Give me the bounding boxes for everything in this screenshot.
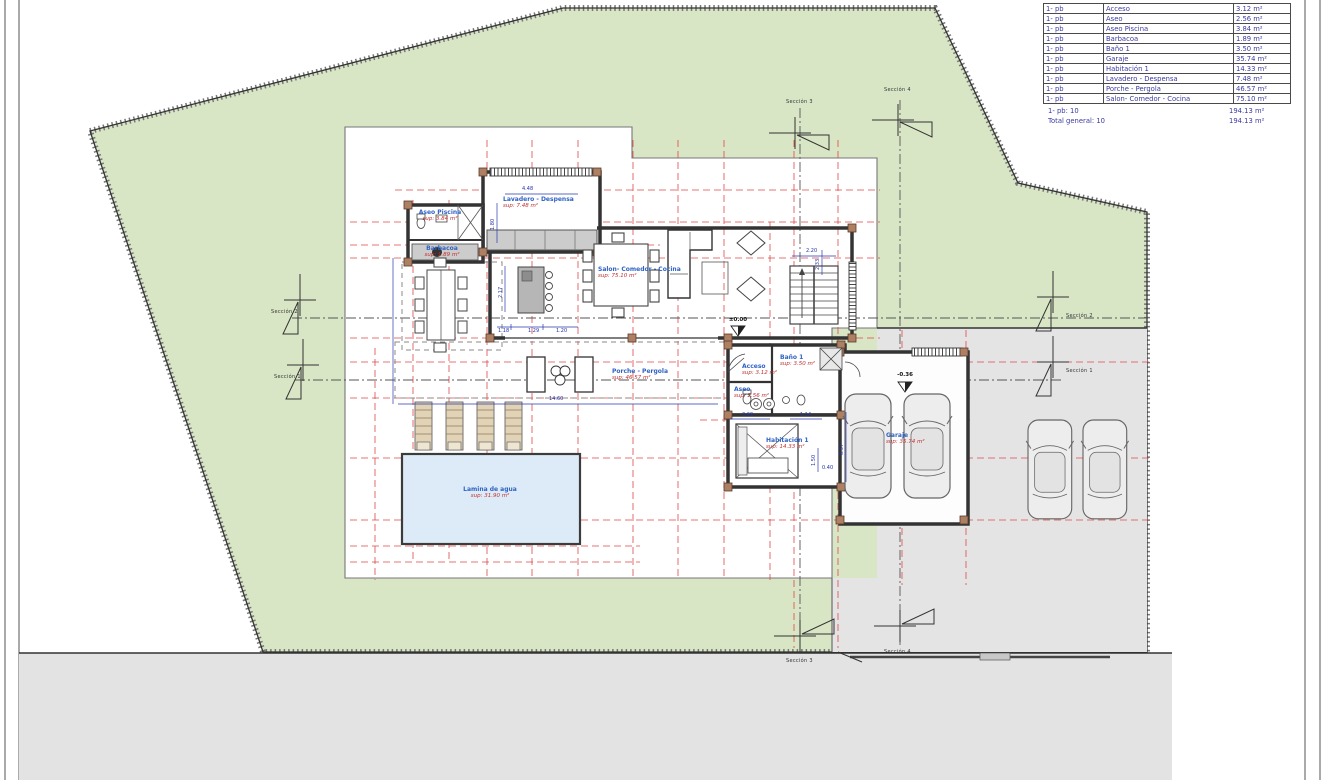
car-parking-1 [1026,420,1074,519]
total-label: Total general: 10 [1048,117,1105,125]
window-garage [912,348,962,356]
dim-0-40: 0.40 [822,466,833,471]
dresser [748,458,788,473]
section-label-4-bottom: Sección 4 [884,649,911,655]
level-garage: -0.36 [888,372,922,378]
total-area: 194.13 m² [1229,117,1264,125]
room-label-lamina-de-agua: Lamina de aguasup: 31.90 m² [455,486,525,500]
room-label-garaje: Garajesup: 35.74 m² [886,432,925,446]
dim-1-20: 1.20 [556,329,567,334]
level-ground: ±0.00 [721,317,755,323]
pillows [738,427,747,475]
room-label-bano: Baño 1sup: 3.50 m² [780,354,815,368]
section-label-3-top: Sección 3 [786,99,813,105]
table-row: 1- pbAseo Piscina3.84 m² [1044,24,1291,34]
room-label-acceso: Accesosup: 3.12 m² [742,363,777,377]
room-label-porche: Porche - Pergolasup: 46.57 m² [612,368,668,382]
car-garage-1 [843,394,893,498]
porch-sofa-2 [575,357,593,392]
table-row: 1- pbHabitación 114.33 m² [1044,64,1291,74]
section-label-4-top: Sección 4 [884,87,911,93]
car-parking-2 [1081,420,1129,519]
table-row: 1- pbGaraje35.74 m² [1044,54,1291,64]
dim-4-48: 4.48 [522,187,533,192]
dim-2-33: 2.33 [816,259,821,270]
section-label-1-right: Sección 1 [1066,368,1093,374]
floor-plan-canvas [0,0,1324,780]
table-row: 1- pbBaño 13.50 m² [1044,44,1291,54]
stairs [790,266,838,324]
room-label-habitacion: Habitación 1sup: 14.33 m² [766,437,809,451]
dim-1-29: 1.29 [528,329,539,334]
window-living-east [849,262,856,330]
table-row: 1- pbSalon- Comedor - Cocina75.10 m² [1044,94,1291,104]
bedroom-furniture [736,424,798,478]
dim-1-80: 1.80 [491,219,496,230]
subtotal-label: 1- pb: 10 [1048,107,1079,115]
dim-3-69: 3.69 [742,413,753,418]
dim-1-18: 1.18 [498,329,509,334]
porch-sofa-1 [527,357,545,392]
dim-14-60: 14.60 [549,397,563,402]
room-label-aseo-piscina: Aseo Piscinasup: 3.84 m² [410,209,470,223]
table-row: 1- pbAseo2.56 m² [1044,14,1291,24]
table-row: 1- pbLavadero - Despensa7.48 m² [1044,74,1291,84]
plan-sheet: 1- pbAcceso3.12 m² 1- pbAseo2.56 m² 1- p… [0,0,1324,780]
section-label-2-left: Sección 2 [271,309,298,315]
section-label-2-right: Sección 2 [1066,313,1093,319]
road [19,653,1172,780]
dim-1-50: 1.50 [812,455,817,466]
table-row: 1- pbBarbacoa1.89 m² [1044,34,1291,44]
room-label-barbacoa: Barbacoasup: 1.89 m² [412,245,472,259]
dim-1-14: 1.14 [800,413,811,418]
dim-2-20: 2.20 [806,249,817,254]
table-row: 1- pbPorche - Pergola46.57 m² [1044,84,1291,94]
window-laundry [490,168,592,176]
section-label-1-left: Sección 1 [274,374,301,380]
subtotal-area: 194.13 m² [1229,107,1264,115]
room-label-aseo: Aseosup: 2.56 m² [734,386,769,400]
dim-2-17: 2.17 [499,287,504,298]
car-garage-2 [902,394,952,498]
table-row: 1- pbAcceso3.12 m² [1044,4,1291,14]
section-label-3-bottom: Sección 3 [786,658,813,664]
areas-table: 1- pbAcceso3.12 m² 1- pbAseo2.56 m² 1- p… [1043,3,1281,104]
room-label-salon: Salon- Comedor - Cocinasup: 75.10 m² [598,266,681,280]
room-label-lavadero: Lavadero - Despensasup: 7.48 m² [503,196,574,210]
dim-8-57: 8.57 [840,444,845,455]
